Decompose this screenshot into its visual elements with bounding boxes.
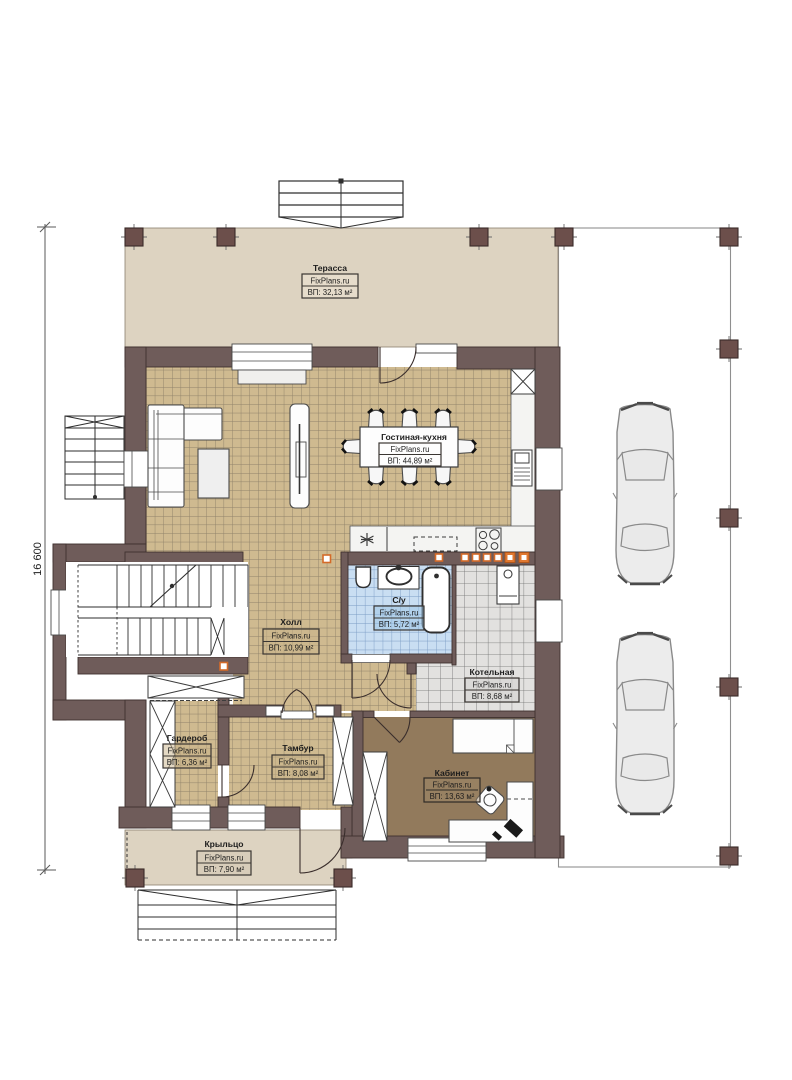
svg-text:FixPlans.ru: FixPlans.ru [311, 277, 350, 286]
svg-text:Тамбур: Тамбур [282, 743, 313, 753]
svg-text:ВП: 7,90 м²: ВП: 7,90 м² [204, 865, 245, 874]
svg-text:FixPlans.ru: FixPlans.ru [380, 609, 419, 618]
svg-text:ВП: 13,63 м²: ВП: 13,63 м² [430, 792, 475, 801]
svg-text:FixPlans.ru: FixPlans.ru [168, 747, 207, 756]
svg-text:ВП: 10,99 м²: ВП: 10,99 м² [269, 644, 314, 653]
svg-text:Терасса: Терасса [313, 263, 347, 273]
svg-text:ВП: 5,72 м²: ВП: 5,72 м² [379, 620, 420, 629]
svg-text:FixPlans.ru: FixPlans.ru [272, 632, 311, 641]
svg-text:Холл: Холл [280, 617, 302, 627]
svg-text:FixPlans.ru: FixPlans.ru [205, 854, 244, 863]
svg-text:Котельная: Котельная [470, 667, 515, 677]
svg-text:FixPlans.ru: FixPlans.ru [473, 681, 512, 690]
svg-text:FixPlans.ru: FixPlans.ru [433, 781, 472, 790]
svg-text:ВП: 32,13 м²: ВП: 32,13 м² [308, 288, 353, 297]
svg-text:Гардероб: Гардероб [167, 733, 208, 743]
svg-text:16 600: 16 600 [32, 542, 44, 576]
svg-text:Гостиная-кухня: Гостиная-кухня [381, 432, 447, 442]
svg-text:С/у: С/у [392, 595, 406, 605]
svg-text:ВП: 44,89 м²: ВП: 44,89 м² [388, 457, 433, 466]
svg-text:ВП: 8,08 м²: ВП: 8,08 м² [278, 769, 319, 778]
svg-text:Крыльцо: Крыльцо [204, 839, 243, 849]
svg-text:ВП: 8,68 м²: ВП: 8,68 м² [472, 692, 513, 701]
svg-text:Кабинет: Кабинет [435, 768, 470, 778]
svg-text:ВП: 6,36 м²: ВП: 6,36 м² [167, 758, 208, 767]
svg-text:FixPlans.ru: FixPlans.ru [391, 445, 430, 454]
svg-text:FixPlans.ru: FixPlans.ru [279, 758, 318, 767]
